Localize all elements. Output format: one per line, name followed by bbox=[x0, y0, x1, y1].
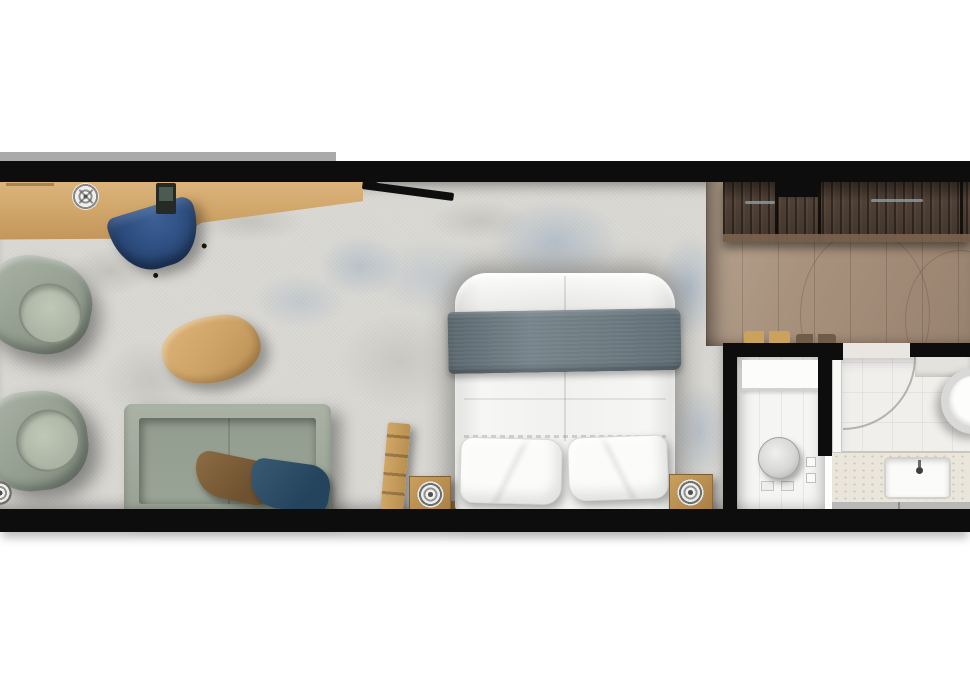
bathroom-door-leaf bbox=[832, 358, 842, 453]
floorplan-canvas bbox=[0, 0, 970, 700]
vanity-sink bbox=[884, 457, 951, 499]
wardrobe-base-edge bbox=[723, 234, 970, 242]
wc-wall-top bbox=[723, 343, 832, 357]
ceiling-spotlight-icon bbox=[72, 183, 99, 210]
double-bed bbox=[452, 270, 678, 512]
bathroom-door-threshold bbox=[843, 343, 910, 358]
desk-phone bbox=[156, 183, 176, 214]
flush-button bbox=[806, 457, 816, 467]
nightstand-left bbox=[409, 476, 451, 512]
wall-top bbox=[0, 161, 970, 182]
ceiling-speaker-icon bbox=[417, 481, 444, 508]
sofa bbox=[124, 404, 331, 514]
wall-niche bbox=[775, 182, 818, 197]
seat-cushion bbox=[9, 402, 88, 479]
ceiling-speaker-icon bbox=[0, 480, 13, 506]
balcony-ledge-line bbox=[0, 152, 336, 161]
desk-drawer-line bbox=[6, 183, 54, 186]
flush-button bbox=[806, 473, 816, 483]
toilet-foot bbox=[761, 481, 774, 491]
wardrobe-hanging-rail bbox=[745, 201, 775, 204]
bed-pillow-left bbox=[459, 437, 563, 506]
ceiling-speaker-icon bbox=[677, 479, 704, 506]
faucet bbox=[916, 467, 923, 474]
bed-pillow-right bbox=[567, 434, 669, 501]
duvet-fold-line bbox=[464, 398, 666, 400]
nightstand-right bbox=[669, 474, 713, 510]
wardrobe-divider bbox=[960, 179, 963, 242]
wall-bottom bbox=[0, 509, 970, 532]
wc-wall-left bbox=[723, 343, 737, 509]
bed-runner-blanket bbox=[447, 308, 681, 374]
bathroom-wall-stub-left bbox=[832, 343, 843, 360]
sofa-pillow-navy bbox=[247, 457, 333, 516]
bathroom-wall-stub-right bbox=[910, 343, 970, 357]
wc-wall-right bbox=[818, 357, 832, 456]
wc-cistern-shelf bbox=[742, 360, 818, 391]
toilet-fixture bbox=[758, 437, 800, 479]
wardrobe-divider bbox=[818, 179, 821, 242]
wardrobe-hanging-rail bbox=[871, 199, 923, 202]
toilet-foot bbox=[781, 481, 794, 491]
wardrobe bbox=[723, 179, 970, 242]
